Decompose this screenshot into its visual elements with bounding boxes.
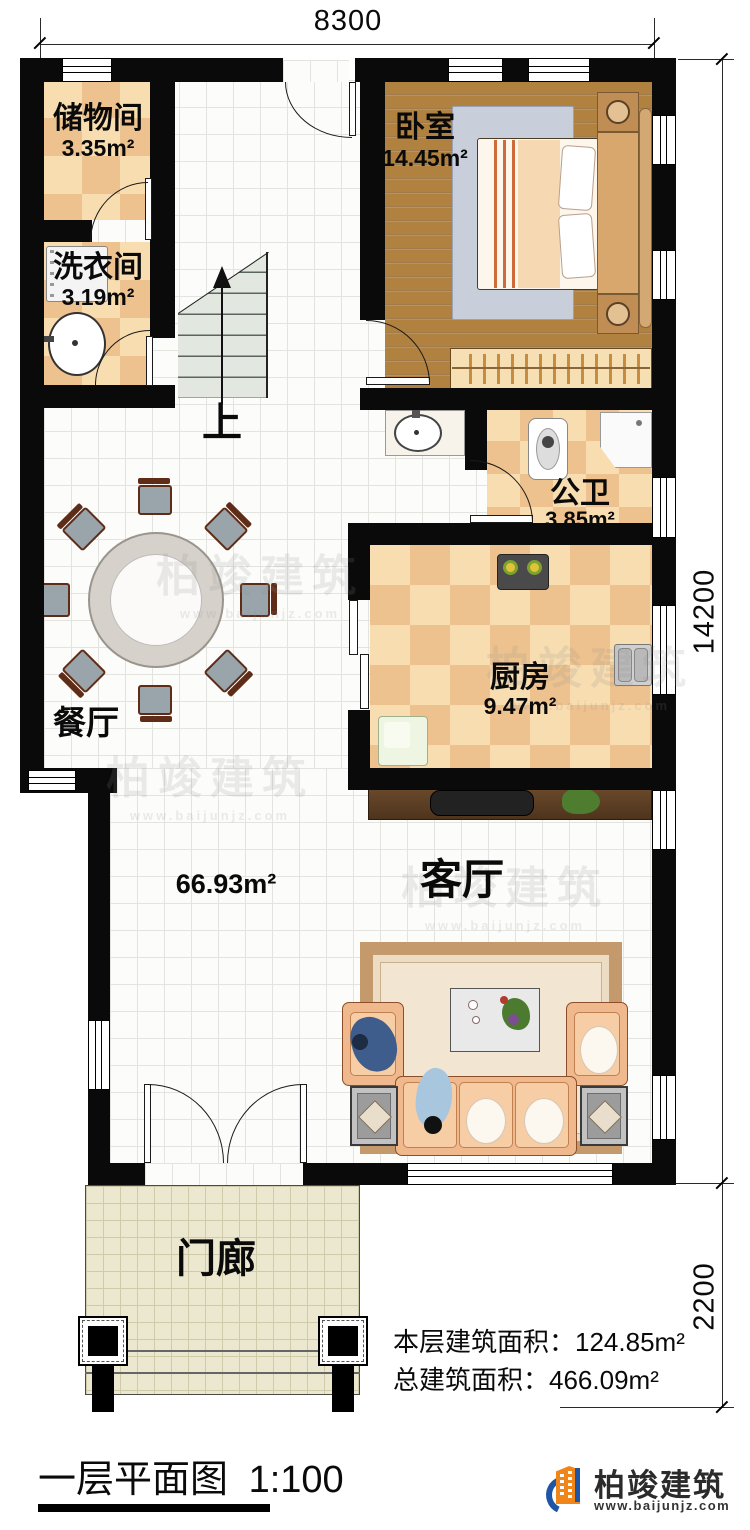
stairs-edge bbox=[266, 252, 268, 398]
wall-segment bbox=[355, 58, 448, 82]
plant-icon bbox=[562, 788, 600, 814]
porch-step-line bbox=[85, 1372, 360, 1374]
squat-toilet-basin bbox=[536, 428, 560, 470]
armchair-pillow bbox=[580, 1026, 618, 1074]
title-underline bbox=[38, 1504, 270, 1512]
coffee-table-cup bbox=[468, 1000, 478, 1010]
page-title-text: 一层平面图 bbox=[38, 1459, 228, 1501]
window bbox=[652, 477, 676, 538]
floor-area-label: 本层建筑面积： bbox=[393, 1327, 575, 1357]
dimension-extension bbox=[678, 59, 734, 60]
wall-interior bbox=[348, 768, 652, 790]
window bbox=[448, 58, 503, 82]
porch-column bbox=[88, 1326, 118, 1356]
window bbox=[652, 115, 676, 165]
dimension-line-right-porch bbox=[722, 1183, 723, 1408]
stairs-arrow-line bbox=[221, 286, 223, 404]
wardrobe-hangers bbox=[458, 354, 644, 384]
bed-blanket-stripes bbox=[488, 140, 518, 288]
window bbox=[407, 1163, 613, 1185]
kitchen-sink-basin bbox=[618, 648, 632, 682]
wall-interior bbox=[20, 385, 175, 408]
wardrobe-rail bbox=[452, 367, 650, 369]
window bbox=[528, 58, 590, 82]
window bbox=[652, 250, 676, 300]
room-label-living: 客厅 bbox=[412, 858, 512, 902]
floorplan-canvas: 8300 14200 2200 bbox=[0, 0, 750, 1530]
room-label-bathroom: 公卫 bbox=[538, 478, 622, 510]
tv bbox=[430, 790, 534, 816]
window bbox=[652, 790, 676, 850]
room-label-dining: 餐厅 bbox=[46, 706, 126, 741]
wall-interior bbox=[348, 545, 370, 600]
area-label-kitchen: 9.47m² bbox=[470, 694, 570, 718]
shower-drain bbox=[636, 420, 642, 426]
stove-burner-icon bbox=[503, 560, 518, 575]
doorway-tile-patch bbox=[283, 60, 349, 82]
bed-side-board bbox=[639, 108, 652, 328]
porch-column bbox=[328, 1326, 358, 1356]
doorway-tile-patch bbox=[145, 1163, 303, 1185]
dimension-line-right-main bbox=[722, 60, 723, 1183]
dining-table-top bbox=[110, 554, 202, 646]
pillow bbox=[558, 145, 596, 211]
sofa-pillow bbox=[466, 1098, 506, 1144]
stairs-up-label: 上 bbox=[198, 402, 246, 444]
dining-chair bbox=[40, 583, 70, 617]
window bbox=[652, 605, 676, 695]
flowers-icon bbox=[500, 996, 508, 1004]
area-label-storage: 3.35m² bbox=[40, 136, 156, 160]
squat-toilet-drain bbox=[542, 436, 554, 448]
faucet-icon bbox=[412, 410, 420, 418]
vanity-sink-drain bbox=[414, 430, 419, 435]
dimension-line-top bbox=[40, 44, 655, 45]
wall-bottom bbox=[613, 1163, 676, 1185]
kitchen-sink-basin bbox=[634, 648, 648, 682]
page-scale: 1:100 bbox=[249, 1459, 344, 1501]
fridge-highlight bbox=[384, 722, 410, 748]
room-label-storage: 储物间 bbox=[40, 103, 156, 135]
wall-segment bbox=[503, 58, 528, 82]
porch-column-foot bbox=[92, 1366, 114, 1412]
floor-area-row: 本层建筑面积：124.85m² bbox=[393, 1322, 685, 1359]
sliding-door-panel bbox=[360, 654, 369, 709]
stairs-up-arrow-icon bbox=[213, 266, 231, 288]
logo-building-windows bbox=[568, 1471, 572, 1499]
wall-segment bbox=[112, 58, 283, 82]
window bbox=[88, 1020, 110, 1090]
wall-left-lower bbox=[88, 793, 110, 1020]
stove-burner-icon bbox=[527, 560, 542, 575]
room-label-laundry: 洗衣间 bbox=[38, 252, 158, 284]
coffee-table-cup bbox=[472, 1016, 480, 1024]
brand-website: www.baijunjz.com bbox=[594, 1498, 746, 1513]
room-label-porch: 门廊 bbox=[172, 1238, 260, 1280]
area-label-bedroom: 14.45m² bbox=[370, 146, 480, 170]
sofa-pillow bbox=[524, 1098, 564, 1144]
page-title: 一层平面图 1:100 bbox=[38, 1448, 344, 1503]
dimension-extension bbox=[560, 1407, 734, 1408]
wall-interior bbox=[44, 220, 92, 242]
area-label-laundry: 3.19m² bbox=[38, 285, 158, 309]
nightstand-lamp-icon bbox=[606, 100, 630, 124]
logo-building-accent bbox=[575, 1468, 580, 1502]
window bbox=[62, 58, 112, 82]
dimension-label-right-porch: 2200 bbox=[689, 1237, 722, 1357]
nightstand-lamp-icon bbox=[606, 302, 630, 326]
room-label-bedroom: 卧室 bbox=[380, 112, 470, 144]
total-area-row: 总建筑面积：466.09m² bbox=[393, 1360, 659, 1397]
total-area-label: 总建筑面积： bbox=[393, 1365, 549, 1395]
headboard bbox=[597, 132, 639, 294]
dimension-label-top: 8300 bbox=[285, 5, 411, 38]
dining-chair bbox=[138, 685, 172, 715]
logo-building-windows bbox=[560, 1474, 564, 1498]
window bbox=[28, 770, 76, 791]
wall-interior bbox=[348, 710, 370, 768]
flowers-icon bbox=[508, 1014, 519, 1025]
wall-interior bbox=[360, 388, 652, 410]
brand-logo-icon bbox=[546, 1466, 590, 1520]
wall-bottom bbox=[88, 1163, 145, 1185]
laundry-sink-drain bbox=[72, 340, 78, 346]
side-table bbox=[350, 1086, 398, 1146]
person-head bbox=[424, 1116, 442, 1134]
dining-chair bbox=[138, 485, 172, 515]
dimension-label-right-main: 14200 bbox=[689, 552, 722, 672]
person-head bbox=[352, 1034, 368, 1050]
bed-blanket bbox=[518, 140, 560, 288]
sliding-door-panel bbox=[349, 600, 358, 655]
porch-column-foot bbox=[332, 1366, 354, 1412]
pillow bbox=[558, 213, 596, 279]
floor-area-value: 124.85m² bbox=[575, 1327, 685, 1357]
total-area-value: 466.09m² bbox=[549, 1365, 659, 1395]
window bbox=[652, 1075, 676, 1140]
area-label-living: 66.93m² bbox=[160, 870, 292, 898]
side-table bbox=[580, 1086, 628, 1146]
room-label-kitchen: 厨房 bbox=[472, 662, 568, 694]
wall-left bbox=[20, 58, 44, 768]
area-label-bathroom: 3.85m² bbox=[534, 508, 626, 531]
dining-chair bbox=[240, 583, 270, 617]
wall-bottom bbox=[303, 1163, 407, 1185]
